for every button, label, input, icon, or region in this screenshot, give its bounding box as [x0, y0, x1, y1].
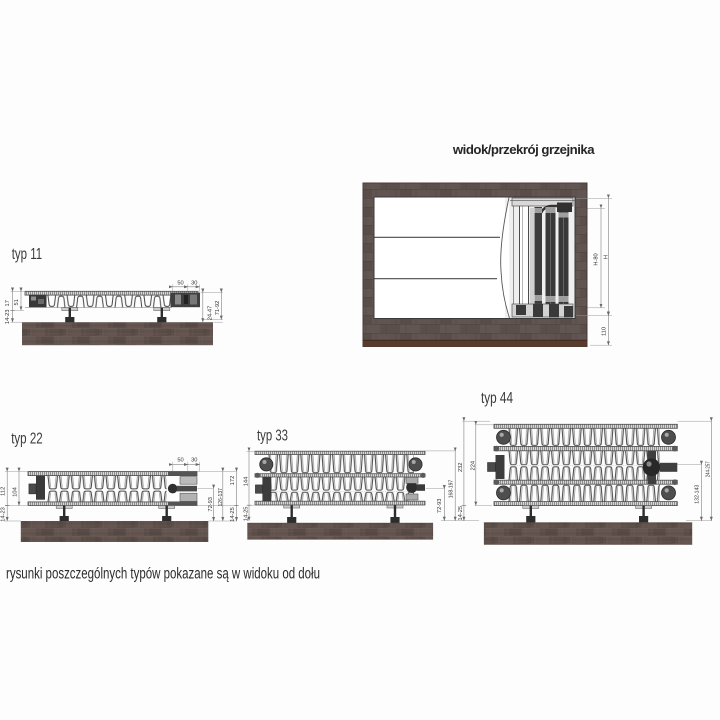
svg-text:71-92: 71-92: [215, 301, 221, 316]
svg-text:30: 30: [191, 280, 197, 286]
svg-text:typ 11: typ 11: [12, 246, 43, 263]
svg-text:104: 104: [13, 487, 19, 497]
svg-text:typ 33: typ 33: [257, 428, 288, 445]
svg-text:172: 172: [230, 476, 236, 486]
svg-text:17: 17: [5, 300, 11, 306]
svg-text:110: 110: [601, 327, 607, 336]
svg-text:typ 44: typ 44: [481, 390, 513, 407]
svg-text:112: 112: [1, 487, 7, 496]
svg-text:14-25: 14-25: [243, 507, 249, 522]
svg-text:24-47: 24-47: [208, 306, 214, 321]
svg-text:244-257: 244-257: [706, 461, 712, 477]
svg-text:30: 30: [191, 457, 197, 463]
svg-text:H-80: H-80: [593, 253, 599, 265]
svg-text:232: 232: [458, 463, 464, 473]
svg-text:typ 22: typ 22: [11, 430, 43, 447]
svg-text:72-93: 72-93: [208, 497, 214, 512]
svg-text:224: 224: [471, 461, 477, 471]
svg-text:51: 51: [14, 299, 20, 305]
svg-text:144: 144: [243, 477, 249, 487]
svg-text:14-23: 14-23: [5, 310, 11, 325]
svg-text:14-25: 14-25: [458, 506, 464, 521]
svg-text:14-25: 14-25: [230, 507, 236, 522]
svg-text:H: H: [603, 255, 609, 259]
svg-text:50: 50: [177, 457, 183, 463]
svg-text:50: 50: [177, 280, 183, 286]
svg-text:rysunki poszczególnych typów p: rysunki poszczególnych typów pokazane są…: [6, 566, 320, 583]
svg-text:126-137: 126-137: [218, 488, 224, 507]
svg-text:168-197: 168-197: [448, 480, 454, 499]
svg-text:132-143: 132-143: [694, 485, 700, 504]
svg-text:14-23: 14-23: [1, 507, 7, 522]
svg-text:72-93: 72-93: [437, 499, 443, 514]
svg-text:widok/przekrój grzejnika: widok/przekrój grzejnika: [452, 142, 595, 157]
